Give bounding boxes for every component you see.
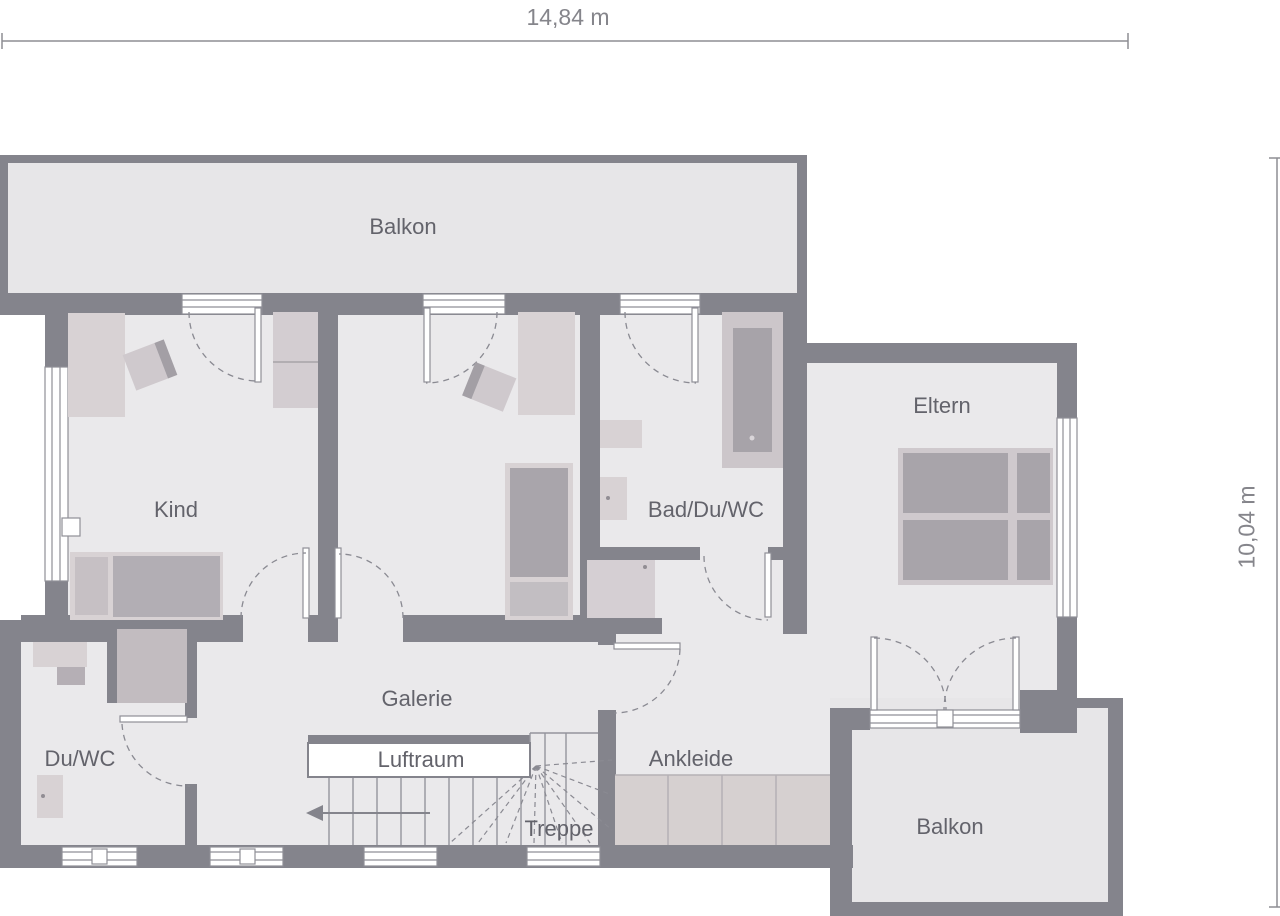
door-leaf-middle xyxy=(335,548,341,618)
wall-bad-south-a xyxy=(580,547,700,560)
floor-plan: 14,84 m 10,04 m Balkon Kind Bad/Du/WC El… xyxy=(0,0,1280,916)
dimension-height-label: 10,04 m xyxy=(1234,485,1261,568)
room-label-bad: Bad/Du/WC xyxy=(648,497,764,523)
door-leaf-bad xyxy=(765,553,771,617)
shower-duwc xyxy=(117,629,187,703)
wall-eltern-east-upper xyxy=(1057,343,1077,418)
door-leaf-middle-balcony xyxy=(424,308,430,382)
opening-kind-door xyxy=(243,615,308,642)
window-handle-icon xyxy=(240,849,255,864)
window-south-duwc xyxy=(62,847,137,866)
door-handle-icon xyxy=(937,710,953,727)
floor-plan-drawing xyxy=(0,0,1280,916)
room-label-du-wc: Du/WC xyxy=(45,746,116,772)
shower-bad xyxy=(587,560,655,618)
opening-duwc-door xyxy=(185,718,197,784)
wall-stair-upper xyxy=(598,634,616,645)
room-label-ankleide: Ankleide xyxy=(649,746,733,772)
opening-ankleide-door xyxy=(598,645,616,710)
room-label-treppe: Treppe xyxy=(525,816,594,842)
door-leaf-french-right xyxy=(1013,637,1019,710)
room-label-balkon-top: Balkon xyxy=(369,214,436,240)
wall-bad-stub xyxy=(587,393,600,452)
door-leaf-duwc xyxy=(120,716,187,722)
balcony-door-kind-window xyxy=(182,294,262,314)
french-door-sill xyxy=(870,710,1020,728)
wall-balkon2-left xyxy=(830,712,852,915)
wall-duwc-stub xyxy=(107,629,117,703)
wall-balcony-right xyxy=(797,155,807,315)
room-label-galerie: Galerie xyxy=(382,686,453,712)
window-eltern-east xyxy=(1057,418,1077,617)
wall-balkon2-right xyxy=(1108,698,1123,916)
window-south-galerie xyxy=(210,847,283,866)
bed-eltern xyxy=(898,448,1053,585)
desk-kind xyxy=(68,313,125,417)
window-south-stair-1 xyxy=(364,847,437,866)
room-label-kind: Kind xyxy=(154,497,198,523)
wall-duwc-east-lower xyxy=(185,784,197,845)
balcony-door-bad-window xyxy=(620,294,700,314)
dimension-width-label: 14,84 m xyxy=(526,4,609,31)
wall-balkon2-bottom xyxy=(830,902,1123,916)
wc-duwc xyxy=(37,775,63,818)
room-label-balkon-bottom: Balkon xyxy=(916,814,983,840)
door-leaf-kind xyxy=(303,548,309,618)
bed-middle-room xyxy=(505,463,573,620)
wall-balcony-top xyxy=(0,155,807,163)
wardrobe-ankleide xyxy=(615,775,830,845)
wall-niche-west xyxy=(580,560,587,618)
door-leaf-french-left xyxy=(871,637,877,710)
door-leaf-bad-balcony xyxy=(692,308,698,382)
wall-stair-lower xyxy=(598,710,616,845)
window-handle-icon xyxy=(62,518,80,536)
wall-balcony-left xyxy=(0,155,8,315)
room-label-eltern: Eltern xyxy=(913,393,970,419)
wardrobe-kind xyxy=(273,312,318,408)
opening-middle-door xyxy=(338,615,403,642)
door-leaf-kind-balcony xyxy=(255,308,261,382)
wall-eltern-north xyxy=(783,343,1077,363)
luftraum-edge-bar xyxy=(308,735,530,743)
opening-bad-door xyxy=(700,547,768,560)
door-leaf-ankleide xyxy=(614,643,680,649)
wall-niche-bottom xyxy=(580,618,662,634)
desk-middle-room xyxy=(518,312,575,415)
bed-kind xyxy=(70,552,223,620)
bathtub xyxy=(722,312,783,468)
room-label-luftraum: Luftraum xyxy=(378,747,465,773)
window-handle-icon xyxy=(92,849,107,864)
wall-west-lower xyxy=(0,620,21,868)
washbasin-bad xyxy=(600,420,642,448)
window-south-stair-2 xyxy=(527,847,600,866)
wall-eltern-south-b xyxy=(1020,690,1077,733)
balcony-bottom-floor xyxy=(830,698,1123,910)
balcony-door-middle-window xyxy=(423,294,505,314)
wc-bad xyxy=(600,477,627,520)
